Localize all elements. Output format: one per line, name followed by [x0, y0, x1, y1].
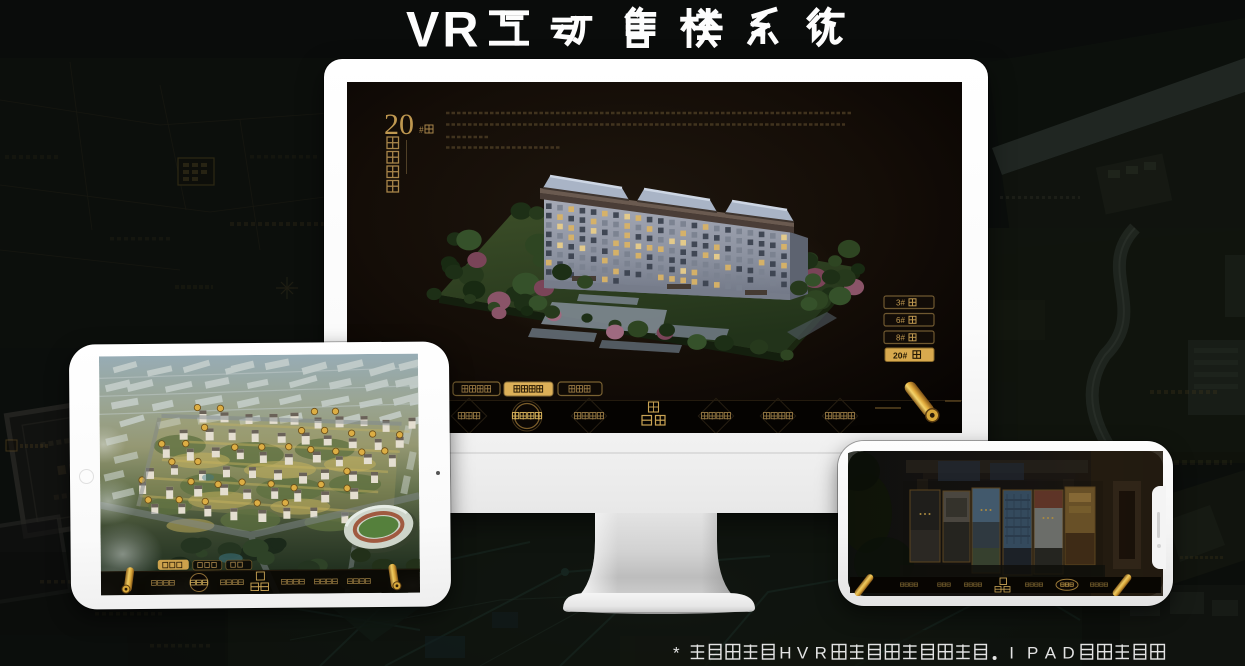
svg-text:20#: 20# — [893, 351, 907, 361]
svg-text:D: D — [1062, 644, 1074, 663]
svg-text:V: V — [797, 644, 809, 663]
svg-text:*: * — [673, 644, 680, 663]
svg-text:I: I — [1009, 644, 1014, 663]
svg-text:H: H — [779, 644, 791, 663]
svg-text:6#: 6# — [896, 316, 905, 325]
svg-text:VR: VR — [406, 2, 481, 58]
svg-text:8#: 8# — [896, 334, 905, 343]
svg-text:A: A — [1045, 644, 1057, 663]
svg-text:20: 20 — [384, 108, 414, 141]
svg-text:R: R — [815, 644, 827, 663]
svg-text:#: # — [419, 125, 424, 135]
svg-text:P: P — [1027, 644, 1038, 663]
svg-text:3#: 3# — [896, 299, 905, 308]
